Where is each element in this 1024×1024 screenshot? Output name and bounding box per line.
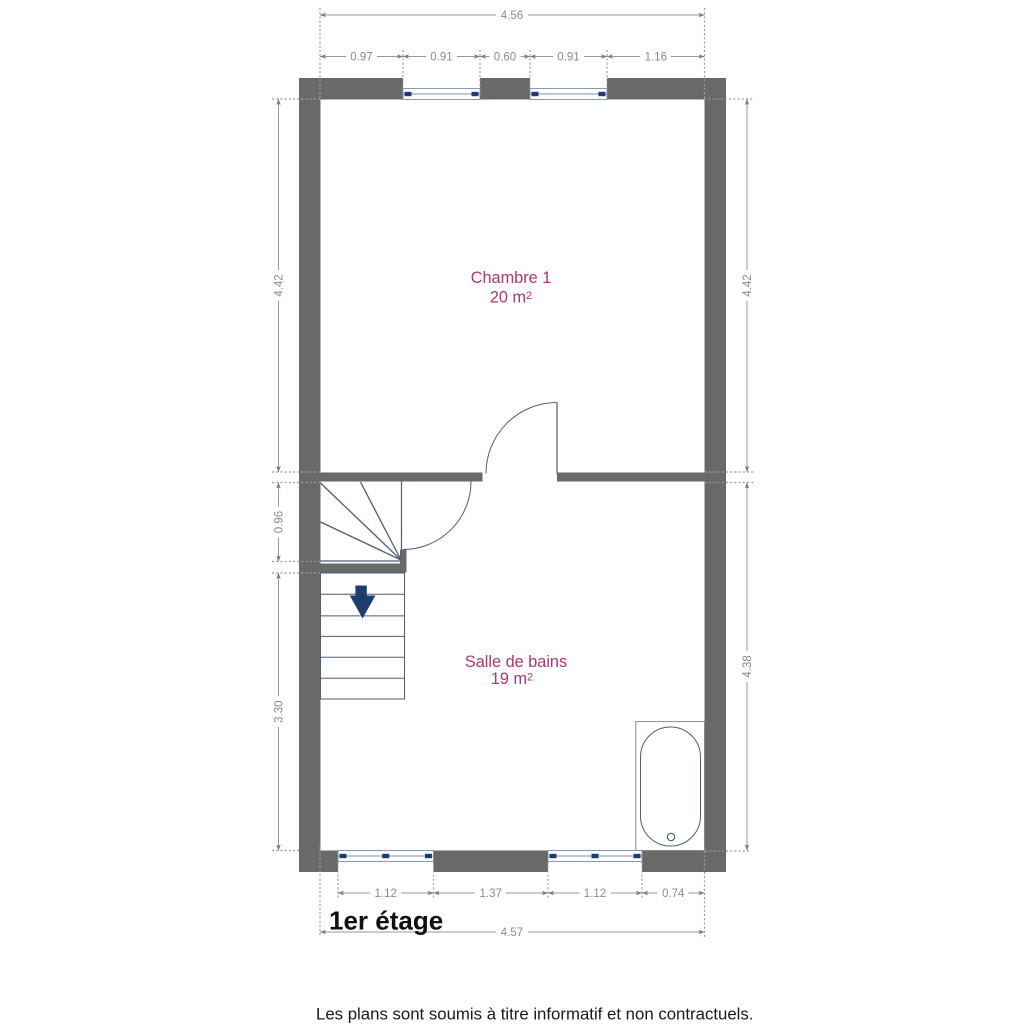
svg-text:1er étage: 1er étage [329,906,443,936]
svg-text:Les plans sont soumis à titre: Les plans sont soumis à titre informatif… [316,1004,753,1023]
svg-text:Chambre 1: Chambre 1 [471,269,552,287]
svg-text:1.12: 1.12 [584,888,606,900]
svg-text:1.16: 1.16 [645,52,667,64]
svg-text:4.42: 4.42 [742,274,754,296]
svg-text:20 m2: 20 m2 [490,289,532,307]
svg-text:0.96: 0.96 [274,511,286,533]
svg-text:19 m2: 19 m2 [491,670,533,688]
svg-text:0.60: 0.60 [494,52,516,64]
svg-text:4.42: 4.42 [274,274,286,296]
svg-text:1.12: 1.12 [375,888,397,900]
svg-text:4.38: 4.38 [742,655,754,677]
svg-text:4.56: 4.56 [501,10,523,22]
svg-text:0.97: 0.97 [350,52,372,64]
svg-text:0.91: 0.91 [430,52,452,64]
svg-text:0.74: 0.74 [662,888,685,900]
svg-text:4.57: 4.57 [501,927,523,939]
svg-text:3.30: 3.30 [274,701,286,723]
svg-text:1.37: 1.37 [480,888,502,900]
svg-text:Salle de bains: Salle de bains [465,653,567,671]
svg-text:0.91: 0.91 [557,52,579,64]
